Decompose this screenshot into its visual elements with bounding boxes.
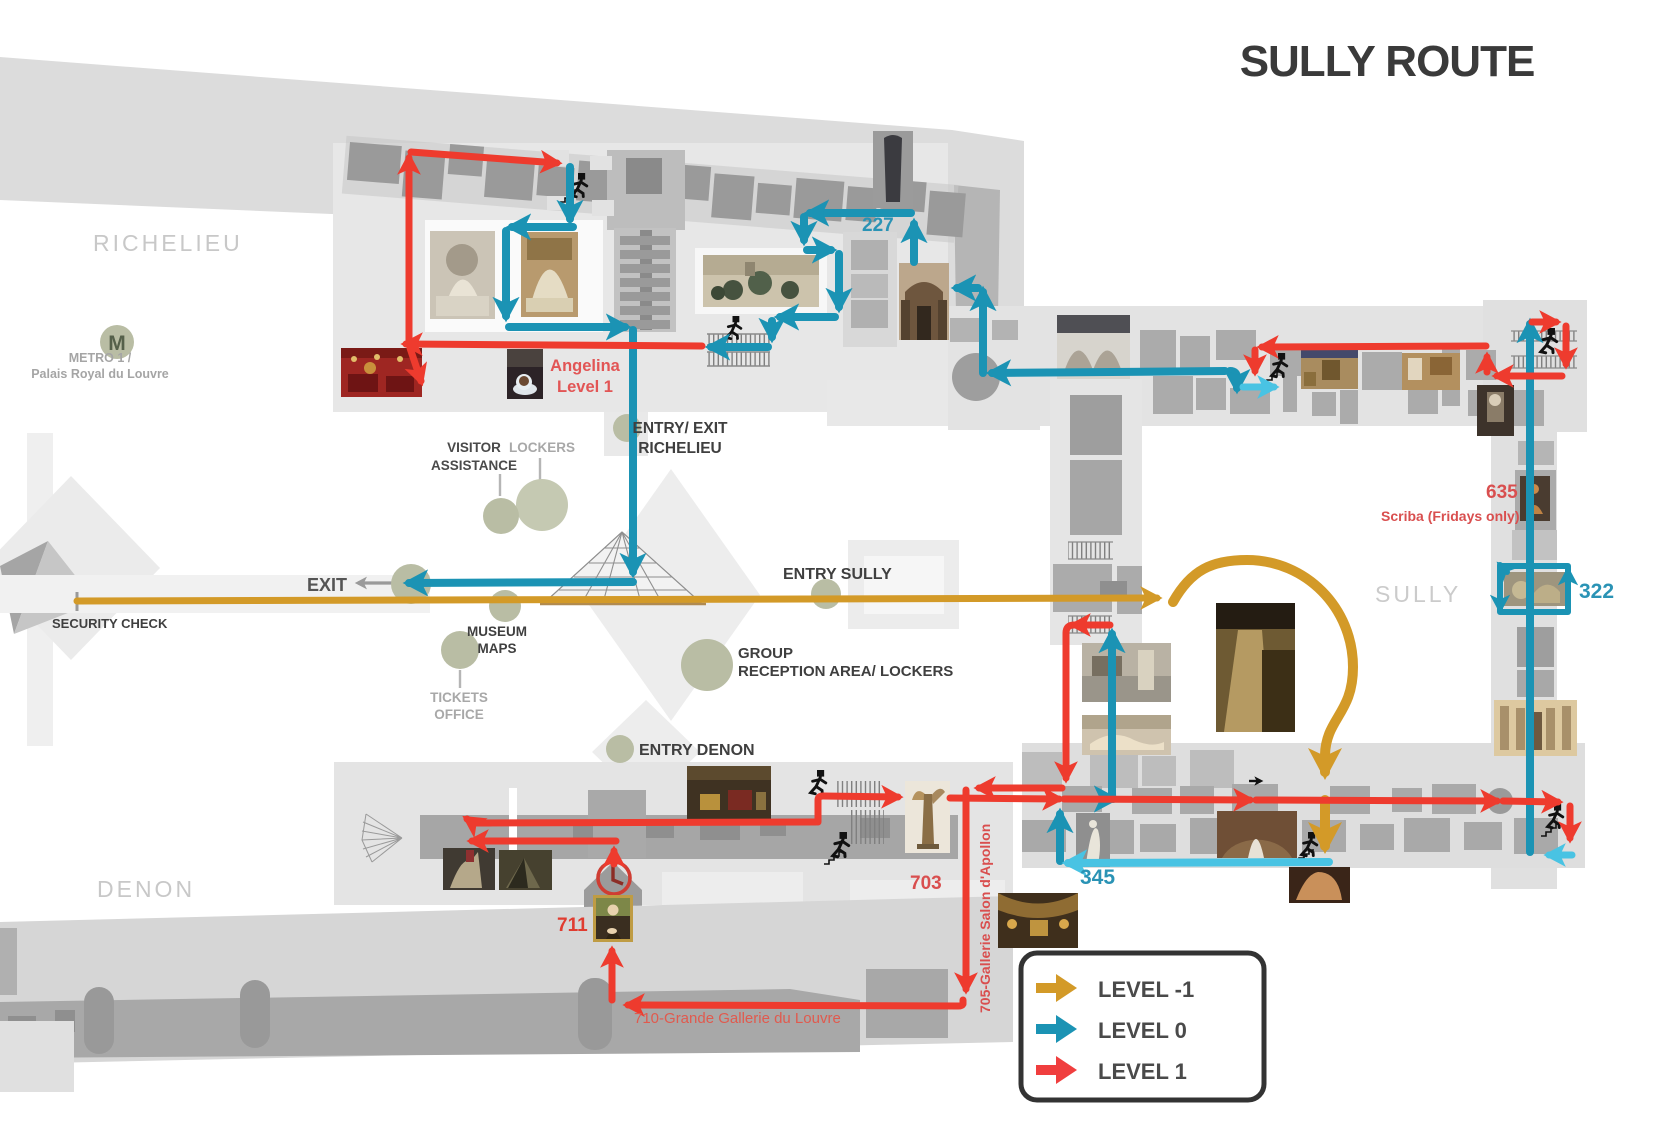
svg-text:OFFICE: OFFICE bbox=[434, 707, 484, 722]
svg-text:MAPS: MAPS bbox=[477, 641, 516, 656]
svg-text:Angelina: Angelina bbox=[550, 357, 620, 375]
svg-text:ENTRY SULLY: ENTRY SULLY bbox=[783, 566, 892, 583]
svg-text:ENTRY/ EXIT: ENTRY/ EXIT bbox=[632, 420, 728, 437]
svg-text:LOCKERS: LOCKERS bbox=[509, 440, 575, 455]
svg-text:LEVEL 1: LEVEL 1 bbox=[1098, 1059, 1187, 1084]
svg-text:705-Gallerie Salon d'Apollon: 705-Gallerie Salon d'Apollon bbox=[977, 824, 993, 1013]
svg-text:322: 322 bbox=[1579, 580, 1614, 603]
svg-text:EXIT: EXIT bbox=[307, 575, 347, 595]
svg-text:DENON: DENON bbox=[97, 876, 195, 902]
svg-text:Palais Royal du Louvre: Palais Royal du Louvre bbox=[31, 367, 169, 381]
svg-text:MUSEUM: MUSEUM bbox=[467, 624, 527, 639]
svg-text:703: 703 bbox=[910, 873, 942, 894]
svg-text:VISITOR: VISITOR bbox=[447, 440, 501, 455]
svg-text:ASSISTANCE: ASSISTANCE bbox=[431, 458, 517, 473]
svg-text:RECEPTION AREA/ LOCKERS: RECEPTION AREA/ LOCKERS bbox=[738, 663, 953, 680]
svg-text:RICHELIEU: RICHELIEU bbox=[638, 440, 722, 457]
svg-text:GROUP: GROUP bbox=[738, 645, 793, 662]
svg-text:METRO 1 /: METRO 1 / bbox=[69, 351, 132, 365]
svg-text:TICKETS: TICKETS bbox=[430, 690, 488, 705]
svg-text:345: 345 bbox=[1080, 866, 1115, 889]
svg-text:710-Grande Gallerie du Louvre: 710-Grande Gallerie du Louvre bbox=[634, 1010, 841, 1027]
svg-text:RICHELIEU: RICHELIEU bbox=[93, 230, 243, 256]
svg-text:ENTRY DENON: ENTRY DENON bbox=[639, 742, 755, 759]
svg-text:Level 1: Level 1 bbox=[557, 378, 613, 396]
svg-text:SULLY: SULLY bbox=[1375, 581, 1461, 607]
svg-text:SULLY ROUTE: SULLY ROUTE bbox=[1240, 37, 1535, 86]
svg-text:227: 227 bbox=[862, 215, 894, 236]
svg-text:LEVEL 0: LEVEL 0 bbox=[1098, 1018, 1187, 1043]
svg-text:635: 635 bbox=[1486, 482, 1518, 503]
svg-text:711: 711 bbox=[557, 915, 588, 936]
svg-text:SECURITY CHECK: SECURITY CHECK bbox=[52, 616, 168, 631]
svg-text:Scriba (Fridays only): Scriba (Fridays only) bbox=[1381, 508, 1519, 524]
svg-text:LEVEL -1: LEVEL -1 bbox=[1098, 977, 1194, 1002]
